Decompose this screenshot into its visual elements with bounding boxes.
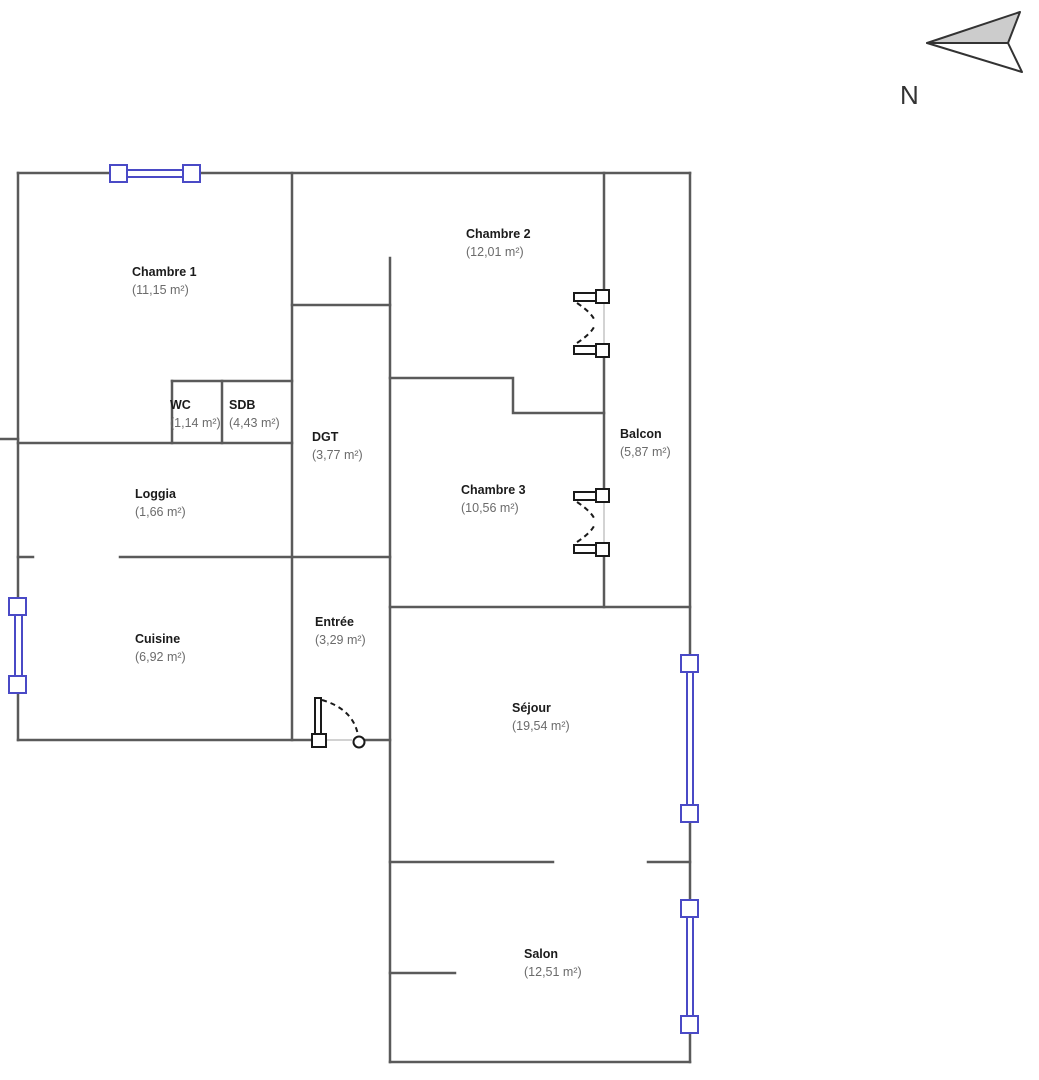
room-area: (12,01 m²) [466, 243, 531, 261]
room-name: Chambre 1 [132, 263, 197, 281]
doors [312, 290, 609, 748]
window-salon [681, 900, 698, 1033]
floor-plan-canvas: Chambre 1 (11,15 m²) Chambre 2 (12,01 m²… [0, 0, 1039, 1080]
window-sejour [681, 655, 698, 822]
room-area: (3,29 m²) [315, 631, 366, 649]
door-thresholds [327, 297, 604, 740]
room-name: DGT [312, 428, 363, 446]
room-label-entree: Entrée (3,29 m²) [315, 613, 366, 649]
room-name: Cuisine [135, 630, 186, 648]
room-area: (11,15 m²) [132, 281, 197, 299]
room-label-chambre-1: Chambre 1 (11,15 m²) [132, 263, 197, 299]
room-area: (6,92 m²) [135, 648, 186, 666]
room-name: Balcon [620, 425, 671, 443]
room-area: (1,14 m²) [170, 414, 221, 432]
room-name: Entrée [315, 613, 366, 631]
room-name: Chambre 3 [461, 481, 526, 499]
room-label-cuisine: Cuisine (6,92 m²) [135, 630, 186, 666]
room-label-sdb: SDB (4,43 m²) [229, 396, 280, 432]
room-area: (5,87 m²) [620, 443, 671, 461]
room-name: Séjour [512, 699, 570, 717]
room-area: (4,43 m²) [229, 414, 280, 432]
room-name: WC [170, 396, 221, 414]
floor-plan-svg [0, 0, 1039, 1080]
room-area: (19,54 m²) [512, 717, 570, 735]
north-label: N [900, 80, 919, 111]
room-label-salon: Salon (12,51 m²) [524, 945, 582, 981]
room-area: (10,56 m²) [461, 499, 526, 517]
room-label-dgt: DGT (3,77 m²) [312, 428, 363, 464]
room-name: Chambre 2 [466, 225, 531, 243]
window-chambre1 [110, 165, 200, 182]
room-label-wc: WC (1,14 m²) [170, 396, 221, 432]
window-cuisine [9, 598, 26, 693]
room-area: (12,51 m²) [524, 963, 582, 981]
room-label-loggia: Loggia (1,66 m²) [135, 485, 186, 521]
room-area: (3,77 m²) [312, 446, 363, 464]
room-label-chambre-2: Chambre 2 (12,01 m²) [466, 225, 531, 261]
room-name: Salon [524, 945, 582, 963]
room-label-sejour: Séjour (19,54 m²) [512, 699, 570, 735]
room-label-balcon: Balcon (5,87 m²) [620, 425, 671, 461]
wall-chambre2-chambre3 [390, 378, 604, 413]
room-name: SDB [229, 396, 280, 414]
north-arrow-lower [927, 43, 1022, 72]
room-name: Loggia [135, 485, 186, 503]
north-arrow-icon [927, 12, 1022, 72]
north-arrow-upper [927, 12, 1020, 43]
room-area: (1,66 m²) [135, 503, 186, 521]
room-label-chambre-3: Chambre 3 (10,56 m²) [461, 481, 526, 517]
